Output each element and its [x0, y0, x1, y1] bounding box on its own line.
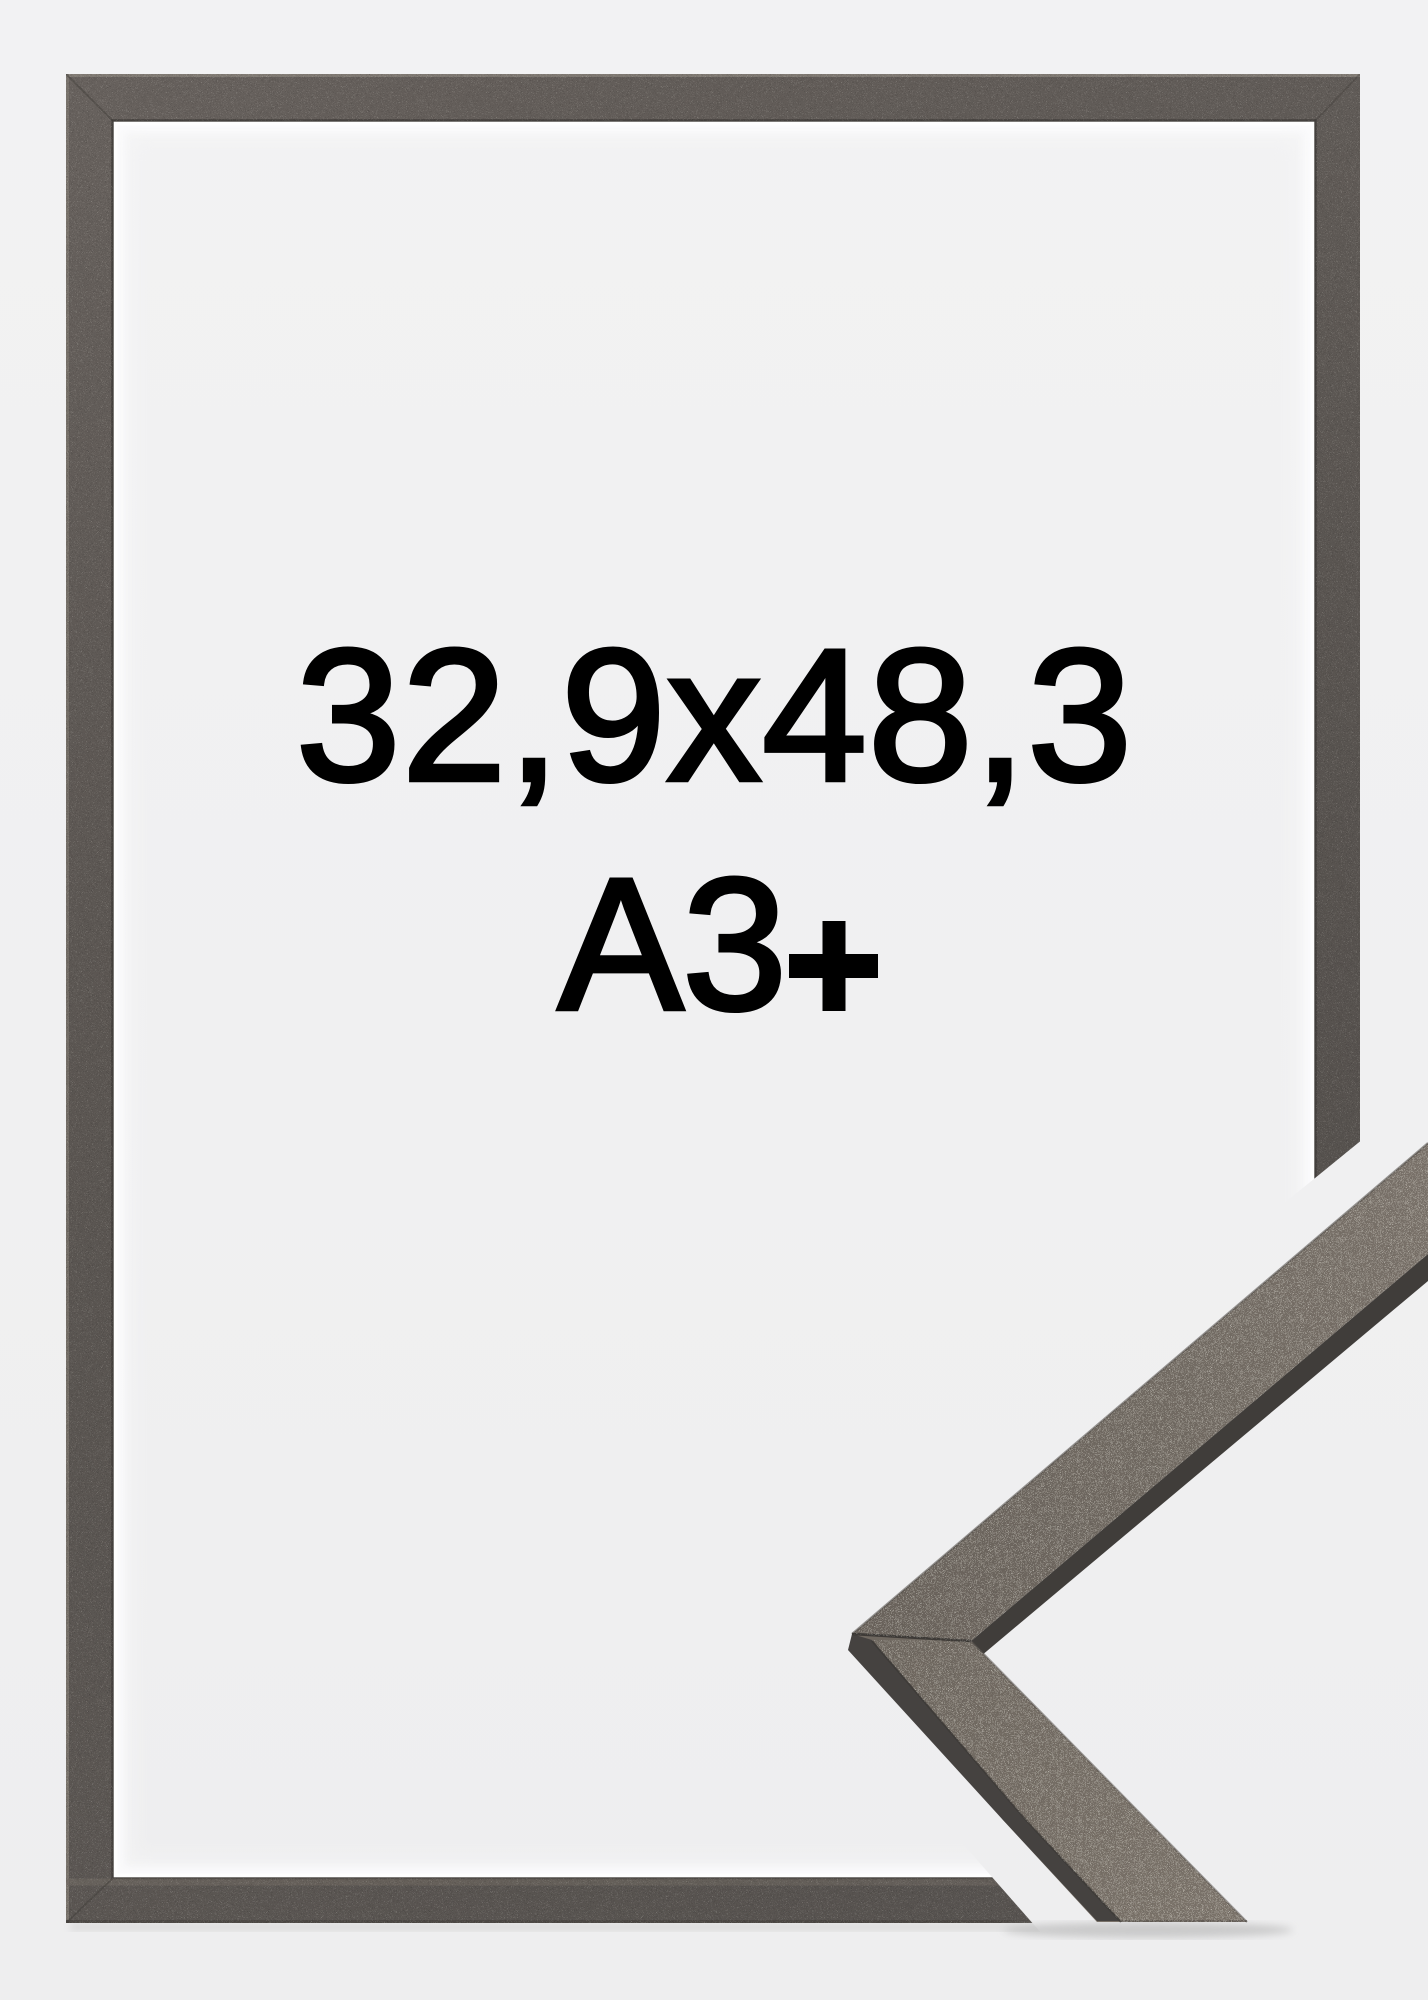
svg-text:32,9x48,3: 32,9x48,3	[296, 610, 1132, 820]
svg-text:A3: A3	[558, 839, 787, 1049]
